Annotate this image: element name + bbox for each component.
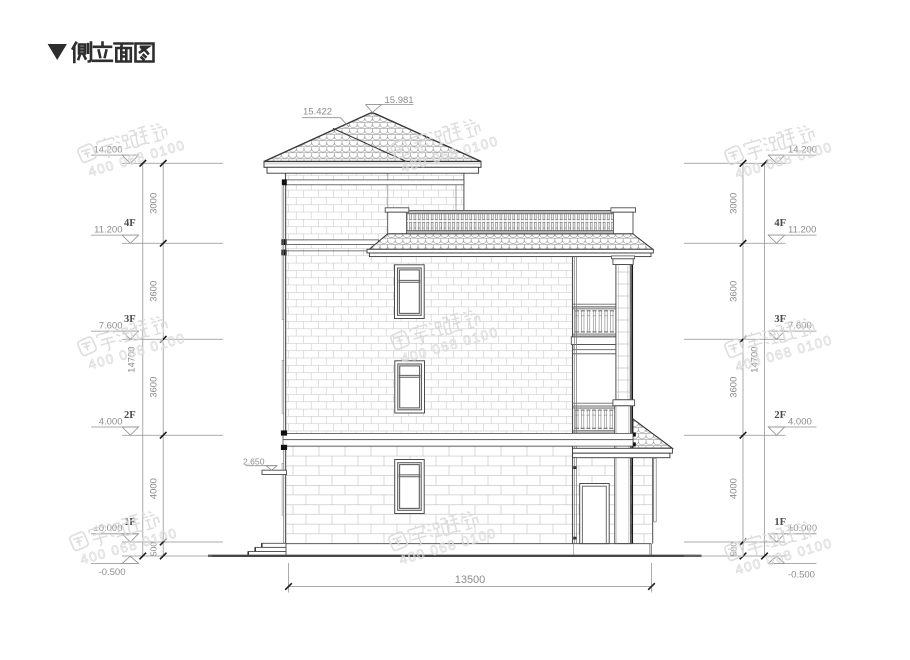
svg-text:-0.500: -0.500 bbox=[99, 567, 126, 578]
svg-text:3600: 3600 bbox=[149, 281, 160, 302]
svg-text:2F: 2F bbox=[124, 410, 136, 421]
svg-text:4000: 4000 bbox=[149, 478, 160, 499]
svg-text:3000: 3000 bbox=[729, 193, 740, 214]
svg-text:4.000: 4.000 bbox=[99, 416, 123, 427]
svg-text:3F: 3F bbox=[774, 314, 786, 325]
svg-text:4F: 4F bbox=[124, 218, 136, 229]
svg-text:2F: 2F bbox=[774, 410, 786, 421]
svg-text:1F: 1F bbox=[774, 517, 786, 528]
svg-text:15.422: 15.422 bbox=[303, 107, 332, 118]
svg-text:13500: 13500 bbox=[455, 574, 486, 586]
svg-text:4F: 4F bbox=[774, 218, 786, 229]
svg-text:3600: 3600 bbox=[729, 281, 740, 302]
svg-text:11.200: 11.200 bbox=[94, 225, 122, 236]
svg-text:3600: 3600 bbox=[149, 377, 160, 398]
svg-text:4000: 4000 bbox=[729, 478, 740, 499]
svg-text:3600: 3600 bbox=[729, 377, 740, 398]
svg-text:15.981: 15.981 bbox=[385, 95, 414, 106]
svg-text:2.650: 2.650 bbox=[243, 456, 265, 466]
svg-text:3000: 3000 bbox=[149, 193, 160, 214]
svg-text:4.000: 4.000 bbox=[788, 416, 812, 427]
svg-text:-0.500: -0.500 bbox=[788, 570, 815, 581]
svg-text:11.200: 11.200 bbox=[788, 225, 816, 236]
